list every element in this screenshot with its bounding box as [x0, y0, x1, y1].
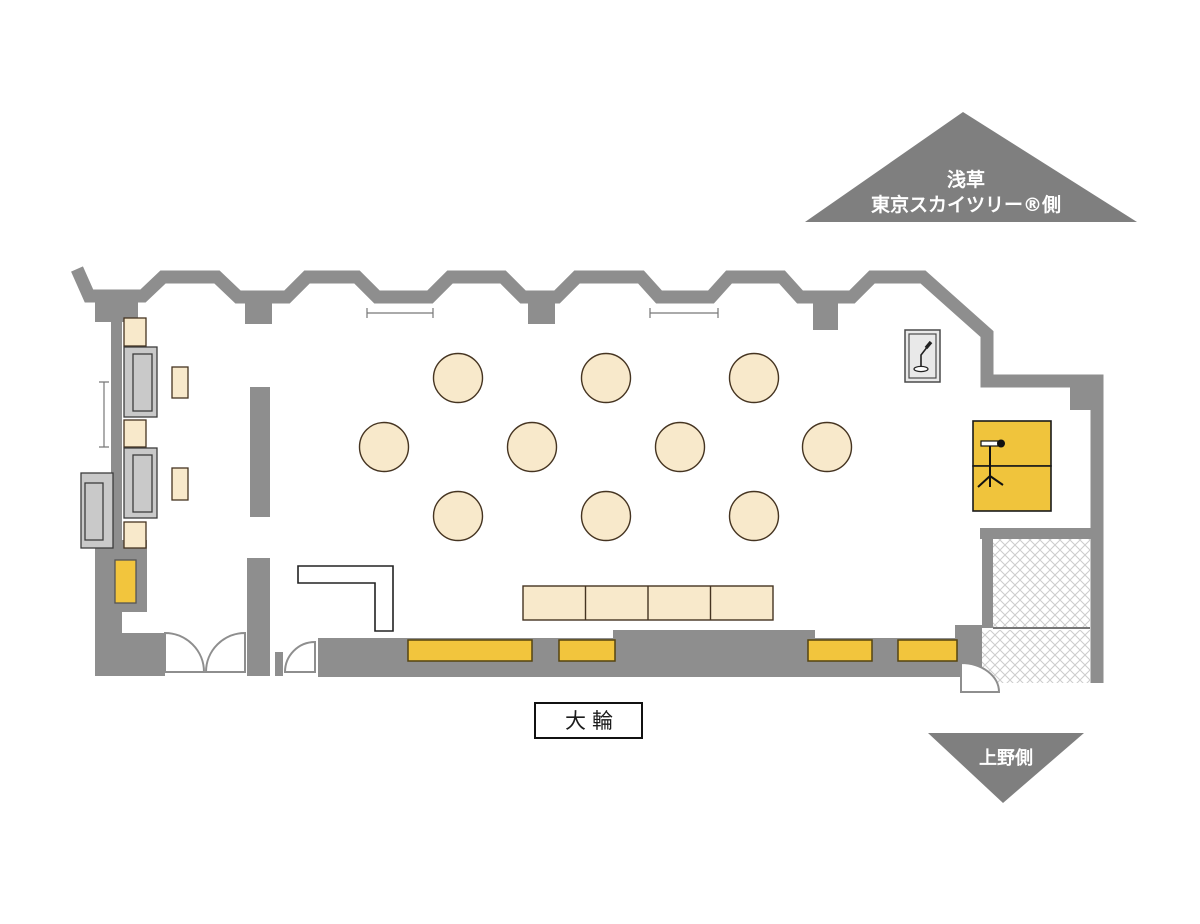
wall-segment	[318, 638, 408, 677]
door-swing	[206, 633, 245, 672]
microphone-box	[905, 330, 940, 382]
direction-top-line2: 東京スカイツリー®側	[871, 193, 1061, 216]
round-table	[434, 492, 483, 541]
wall-segment	[982, 539, 993, 628]
wall-pillar	[528, 302, 555, 324]
direction-marker-top: 浅草 東京スカイツリー®側	[805, 112, 1137, 222]
side-table	[124, 420, 146, 447]
round-tables	[360, 354, 852, 541]
floor-plan: 浅草 東京スカイツリー®側 上野側 大輪	[0, 0, 1200, 924]
direction-bottom-label: 上野側	[979, 747, 1033, 769]
round-table	[508, 423, 557, 472]
round-table	[582, 492, 631, 541]
direction-top-line1: 浅草	[947, 168, 985, 191]
wall-pillar	[813, 302, 838, 330]
round-table	[434, 354, 483, 403]
measurement-line	[367, 308, 433, 318]
direction-marker-bottom: 上野側	[928, 733, 1084, 803]
equipment-box-inner	[85, 483, 103, 540]
measurement-line	[99, 382, 109, 447]
floor-plan-screenshot: 浅草 東京スカイツリー®側 上野側 大輪	[0, 0, 1200, 924]
wall-bench	[898, 640, 957, 661]
round-table	[730, 354, 779, 403]
side-table	[124, 522, 146, 548]
side-table	[172, 367, 188, 398]
equipment-box-inner	[133, 455, 152, 512]
side-table	[124, 318, 146, 346]
room-name-text: 大輪	[565, 709, 619, 733]
wall-bench	[808, 640, 872, 661]
equipment-box-inner	[133, 354, 152, 411]
measurement-line	[650, 308, 718, 318]
wall-segment	[613, 630, 815, 640]
round-table	[656, 423, 705, 472]
wall-bench	[408, 640, 532, 661]
walls	[77, 269, 1103, 683]
round-table	[730, 492, 779, 541]
wall-bench	[559, 640, 615, 661]
wall-segment	[980, 528, 1103, 539]
round-table	[360, 423, 409, 472]
stage-table	[973, 466, 1051, 511]
pillar	[250, 387, 270, 517]
hatched-area-upper	[993, 539, 1090, 627]
long-table-row	[523, 586, 773, 620]
hatched-area	[982, 539, 1090, 683]
side-table	[172, 468, 188, 500]
round-table	[582, 354, 631, 403]
wall-pillar	[245, 302, 272, 324]
wall-bench	[115, 560, 136, 603]
round-table	[803, 423, 852, 472]
wall-segment	[275, 652, 283, 676]
door-swing	[165, 633, 204, 672]
wall-segment	[1070, 387, 1092, 410]
room-name-label: 大輪	[535, 703, 642, 738]
reception-counter	[298, 566, 393, 631]
wall-segment	[247, 558, 270, 676]
door-swing	[285, 642, 315, 672]
stage	[973, 421, 1051, 511]
hatched-area-lower	[982, 630, 1090, 683]
wall-segment	[77, 269, 1097, 683]
